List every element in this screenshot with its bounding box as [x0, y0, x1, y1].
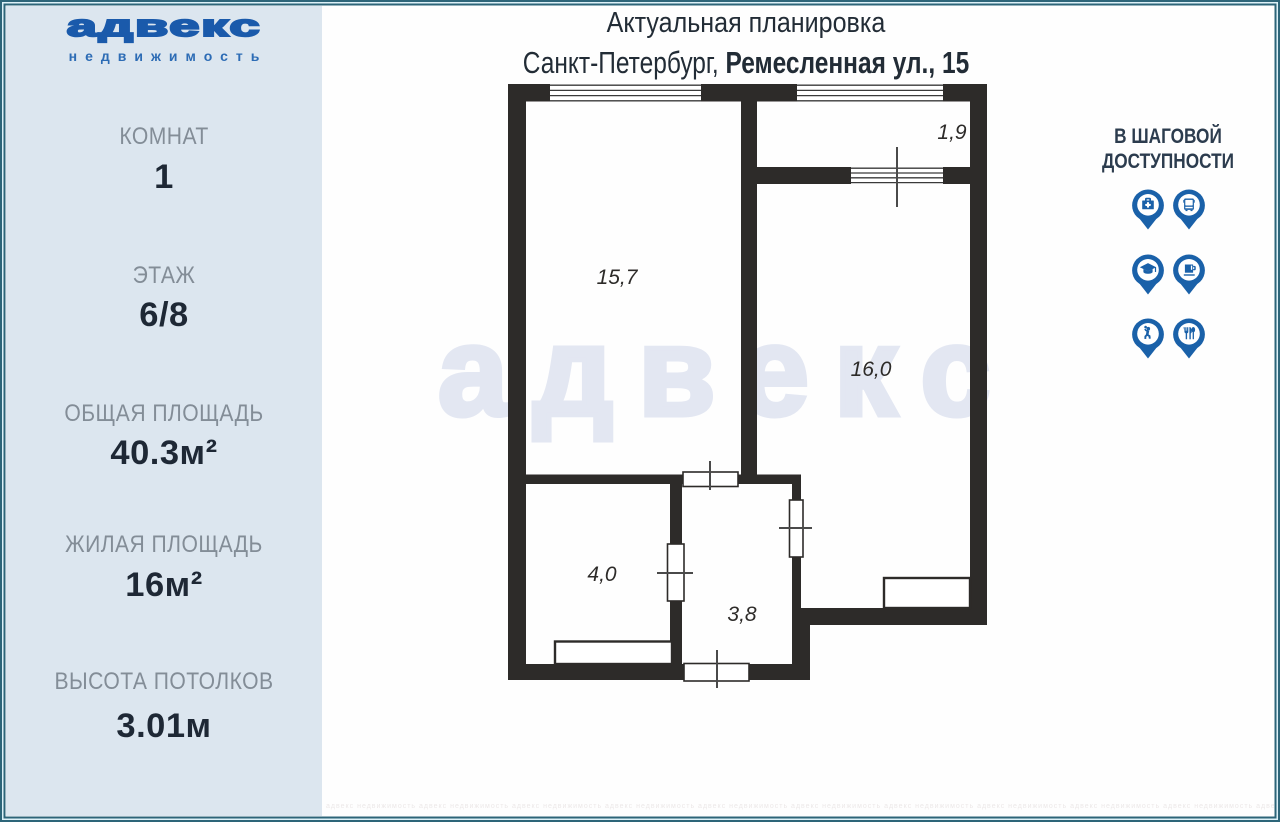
svg-text:15,7: 15,7: [597, 266, 639, 289]
svg-text:4,0: 4,0: [587, 563, 617, 586]
svg-text:16,0: 16,0: [851, 358, 892, 381]
svg-text:3,8: 3,8: [727, 603, 757, 626]
svg-text:1,9: 1,9: [937, 121, 967, 144]
